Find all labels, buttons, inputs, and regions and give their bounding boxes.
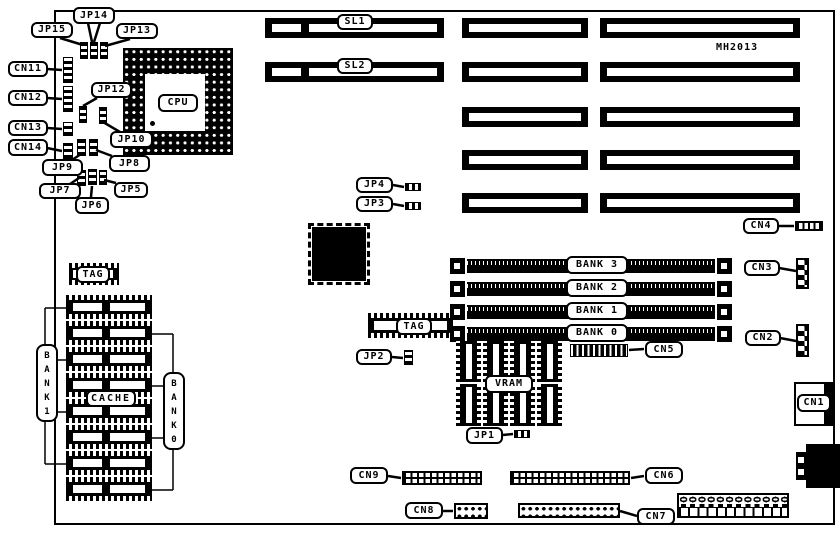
label-cn6: CN6 <box>645 467 683 484</box>
label-cache-bank0: B A N K 0 <box>163 372 185 450</box>
label-sl2: SL2 <box>337 58 373 74</box>
vram-chip <box>537 341 562 382</box>
label-bank2: BANK 2 <box>566 279 628 297</box>
vram-chip <box>456 341 481 382</box>
label-jp2: JP2 <box>356 349 392 365</box>
jumper-jp5-pins <box>99 170 107 185</box>
label-jp3: JP3 <box>356 196 393 212</box>
slot-opening <box>469 199 581 207</box>
connector-cn4-pins <box>795 221 823 231</box>
label-vram: VRAM <box>485 375 533 393</box>
cache-sram-chip <box>66 321 152 345</box>
label-cn14: CN14 <box>8 139 48 156</box>
slot-opening <box>469 156 581 164</box>
label-bank3: BANK 3 <box>566 256 628 274</box>
jumper-jp12-pins <box>79 106 87 123</box>
connector-cn5-pins <box>570 344 628 357</box>
label-jp1: JP1 <box>466 427 503 444</box>
jumper-jp15-pins <box>80 42 88 59</box>
jumper-jp9-pins <box>77 139 86 156</box>
simm-clip <box>450 326 465 342</box>
label-tag-vram: TAG <box>396 318 432 335</box>
isa-slot-short <box>462 193 588 213</box>
cache-sram-chip <box>66 451 152 475</box>
label-jp9: JP9 <box>42 159 83 176</box>
din-notch <box>797 456 805 464</box>
label-cn1: CN1 <box>797 394 831 412</box>
jumper-jp14-pins <box>90 42 98 59</box>
label-jp15: JP15 <box>31 22 73 38</box>
label-cn13: CN13 <box>8 120 48 136</box>
power-connector <box>677 493 789 518</box>
label-jp12: JP12 <box>91 82 132 98</box>
vram-chip <box>456 384 481 426</box>
isa-slot-short <box>462 150 588 170</box>
label-sl1: SL1 <box>337 14 373 30</box>
pin1-marker-dot <box>150 121 155 126</box>
connector-cn13-pins <box>63 122 73 136</box>
label-cn8: CN8 <box>405 502 443 519</box>
simm-clip <box>717 281 732 297</box>
slot-opening <box>272 68 301 76</box>
keyboard-din-connector <box>806 444 840 488</box>
label-jp7: JP7 <box>39 183 81 199</box>
label-jp6: JP6 <box>75 197 109 214</box>
connector-cn9-pins <box>402 471 482 485</box>
label-bank1: BANK 1 <box>566 302 628 320</box>
isa-slot-long <box>600 62 800 82</box>
jumper-jp3-pins <box>405 202 421 210</box>
slot-opening <box>469 24 581 32</box>
label-cache-bank1: B A N K 1 <box>36 344 58 422</box>
connector-cn12-pins <box>63 86 73 112</box>
simm-clip <box>717 304 732 320</box>
label-jp13: JP13 <box>116 23 158 39</box>
label-cache: CACHE <box>86 390 136 407</box>
slot-opening <box>272 24 301 32</box>
connector-cn2-pins <box>796 324 809 357</box>
jumper-jp2-pins <box>404 350 413 365</box>
slot-opening <box>309 24 437 32</box>
cache-sram-chip <box>66 347 152 371</box>
power-connector-pins <box>679 507 787 517</box>
chipset-ic <box>308 223 370 285</box>
connector-cn8-pins <box>454 503 488 519</box>
isa-slot-long <box>600 18 800 38</box>
isa-slot-short <box>462 62 588 82</box>
part-number-text: MH2013 <box>716 42 758 53</box>
jumper-jp8-pins <box>89 139 98 156</box>
simm-clip <box>450 258 465 274</box>
slot-opening <box>607 113 793 121</box>
din-notch <box>797 468 805 476</box>
slot-opening <box>607 199 793 207</box>
slot-opening <box>607 156 793 164</box>
simm-clip <box>717 258 732 274</box>
connector-cn11-pins <box>63 57 73 83</box>
label-jp4: JP4 <box>356 177 393 193</box>
jumper-jp13-pins <box>100 42 108 59</box>
label-jp5: JP5 <box>114 182 148 198</box>
slot-opening <box>607 24 793 32</box>
connector-cn3-pins <box>796 258 809 289</box>
simm-clip <box>450 304 465 320</box>
label-jp10: JP10 <box>110 131 153 148</box>
connector-cn6-pins <box>510 471 630 485</box>
label-cn12: CN12 <box>8 90 48 106</box>
isa-slot-long <box>600 193 800 213</box>
simm-clip <box>450 281 465 297</box>
simm-clip <box>717 326 732 342</box>
cache-sram-chip <box>66 295 152 319</box>
isa-slot-short <box>462 18 588 38</box>
label-jp14: JP14 <box>73 7 115 24</box>
jumper-jp4-pins <box>405 183 421 191</box>
isa-slot-long <box>600 150 800 170</box>
cache-sram-chip <box>66 477 152 501</box>
jumper-jp6-pins <box>88 169 97 185</box>
label-tag-cache: TAG <box>76 266 110 283</box>
label-cn5: CN5 <box>645 341 683 358</box>
power-connector-terminals <box>679 495 787 504</box>
label-cn9: CN9 <box>350 467 388 484</box>
jumper-jp1-pins <box>514 430 530 438</box>
jumper-jp10-pins <box>99 107 107 124</box>
slot-opening <box>469 113 581 121</box>
vram-chip <box>537 384 562 426</box>
motherboard-diagram: MH2013 <box>0 0 840 534</box>
chipset-ic-body <box>312 227 366 281</box>
label-bank0: BANK 0 <box>566 324 628 342</box>
connector-cn7-pins <box>518 503 620 518</box>
label-cn3: CN3 <box>744 260 780 276</box>
isa-slot-long <box>600 107 800 127</box>
label-cpu: CPU <box>158 94 198 112</box>
slot-opening <box>469 68 581 76</box>
label-cn7: CN7 <box>637 508 675 525</box>
slot-opening <box>607 68 793 76</box>
isa-slot-short <box>462 107 588 127</box>
label-cn2: CN2 <box>745 330 781 346</box>
cache-sram-chip <box>66 425 152 449</box>
connector-cn14-pins <box>63 143 73 159</box>
label-cn4: CN4 <box>743 218 779 234</box>
slot-opening <box>309 68 437 76</box>
label-cn11: CN11 <box>8 61 48 77</box>
label-jp8: JP8 <box>109 155 150 172</box>
